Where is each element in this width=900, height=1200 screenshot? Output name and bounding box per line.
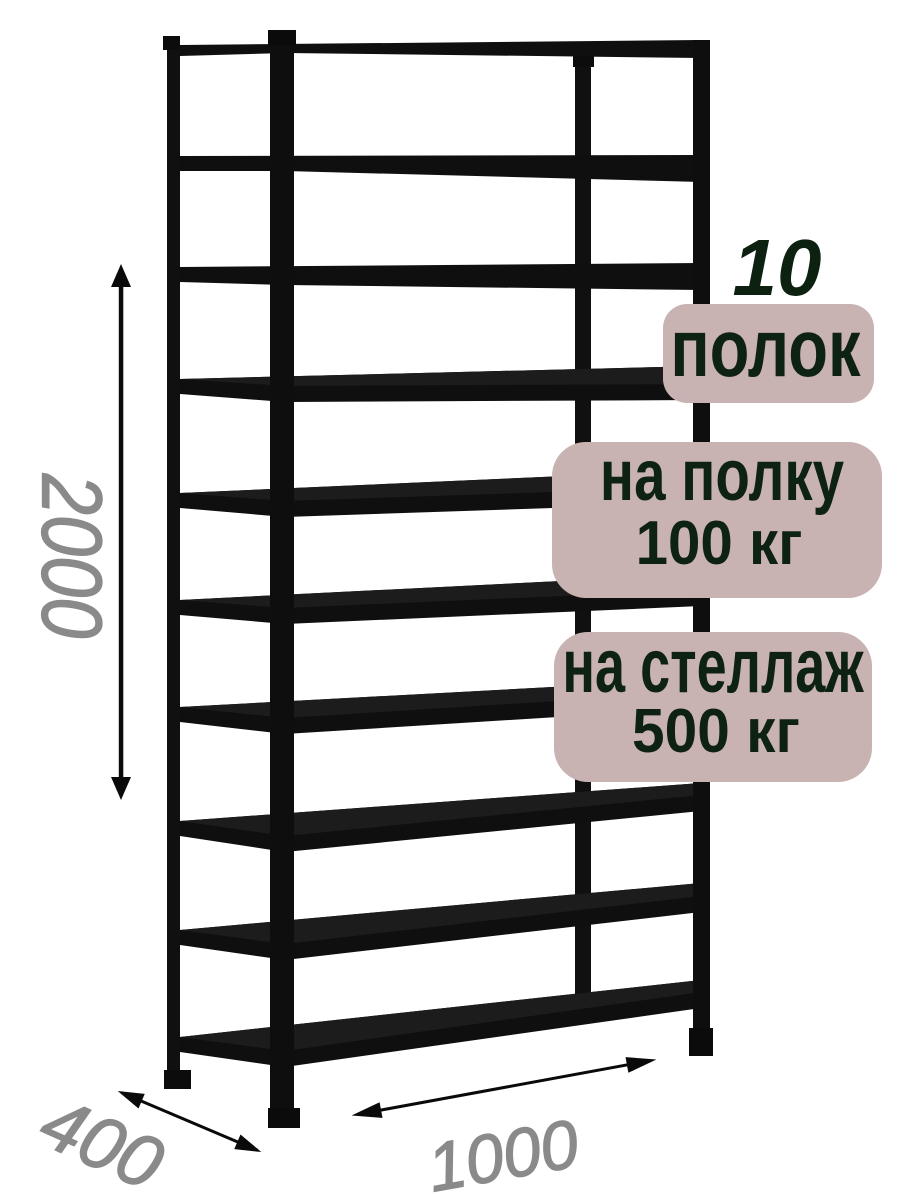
svg-text:на полку: на полку — [600, 434, 844, 515]
svg-text:полок: полок — [670, 302, 861, 394]
svg-text:100 кг: 100 кг — [636, 508, 803, 577]
svg-text:2000: 2000 — [25, 473, 120, 638]
svg-text:10: 10 — [733, 223, 822, 312]
svg-text:500 кг: 500 кг — [632, 695, 800, 765]
